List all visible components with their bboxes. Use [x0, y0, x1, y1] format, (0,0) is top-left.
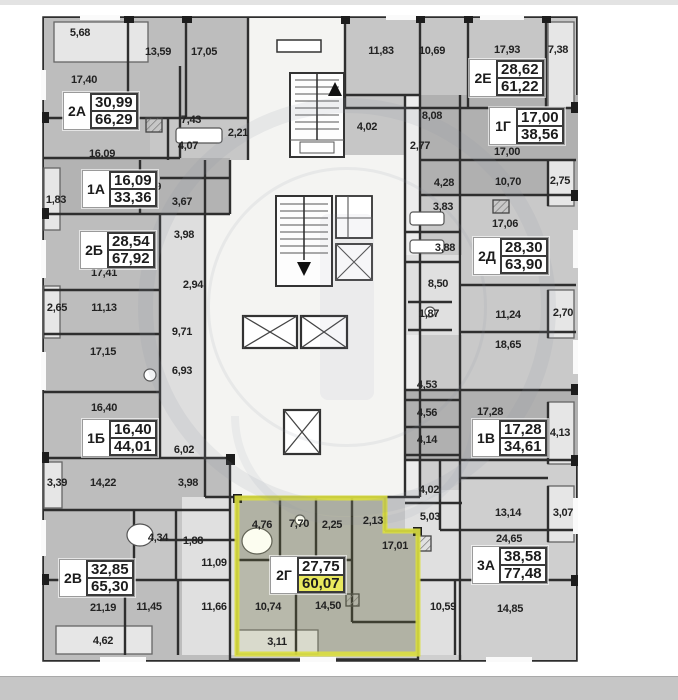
- apartment-id: 3А: [473, 547, 499, 583]
- apartment-id: 1Г: [490, 108, 516, 144]
- room-area-label: 17,06: [492, 218, 518, 230]
- room-area-label: 17,15: [90, 346, 116, 358]
- apartment-living-area: 17,28: [501, 422, 545, 437]
- room-area-label: 5,68: [70, 27, 90, 39]
- room-area-label: 3,98: [178, 477, 198, 489]
- room-area-label: 4,53: [417, 379, 437, 391]
- room-area-label: 2,21: [228, 127, 248, 139]
- room-area-label: 11,24: [495, 309, 520, 321]
- room-area-label: 4,14: [417, 434, 437, 446]
- apartment-id: 2В: [60, 560, 86, 596]
- room-area-label: 4,62: [93, 635, 113, 647]
- apartment-areas: 16,0933,36: [109, 171, 157, 207]
- floor-plan: 5,6813,5917,0517,407,4316,094,077,791,83…: [0, 0, 678, 700]
- room-area-label: 3,11: [267, 636, 287, 648]
- bottom-margin-band: [0, 676, 678, 700]
- room-area-label: 6,93: [172, 365, 192, 377]
- apartment-id: 2Г: [271, 557, 297, 593]
- room-area-label: 2,65: [47, 302, 67, 314]
- room-area-label: 2,94: [183, 279, 203, 291]
- room-area-label: 11,45: [136, 601, 161, 613]
- room-area-label: 3,83: [433, 201, 453, 213]
- apartment-areas: 30,9966,29: [90, 93, 138, 129]
- apartment-box-1А: 1А16,0933,36: [82, 170, 158, 208]
- apartment-living-area: 38,58: [501, 549, 545, 564]
- room-area-label: 10,69: [419, 45, 445, 57]
- room-area-label: 16,09: [89, 148, 115, 160]
- apartment-total-area: 34,61: [501, 437, 545, 454]
- room-area-label: 11,66: [201, 601, 226, 613]
- room-area-label: 4,76: [252, 519, 272, 531]
- room-area-label: 4,56: [417, 407, 437, 419]
- apartment-id: 2Д: [474, 238, 500, 274]
- apartment-living-area: 16,09: [111, 173, 155, 188]
- room-area-label: 3,39: [47, 477, 67, 489]
- apartment-id: 2А: [64, 93, 90, 129]
- apartment-box-1В: 1В17,2834,61: [472, 419, 548, 457]
- room-area-label: 3,98: [174, 229, 194, 241]
- apartment-id: 1Б: [83, 420, 109, 456]
- room-area-label: 14,22: [90, 477, 116, 489]
- apartment-living-area: 30,99: [92, 95, 136, 110]
- apartment-box-2Е: 2Е28,6261,22: [469, 59, 545, 97]
- room-area-label: 10,70: [495, 176, 521, 188]
- room-area-label: 3,67: [172, 196, 192, 208]
- apartment-box-2Г: 2Г27,7560,07: [270, 556, 346, 594]
- apartment-box-2Б: 2Б28,5467,92: [80, 231, 156, 269]
- room-area-label: 4,02: [419, 484, 439, 496]
- stairs-down-arrow: ▼: [298, 262, 311, 275]
- room-area-label: 1,87: [419, 308, 439, 320]
- room-area-label: 24,65: [496, 533, 522, 545]
- room-area-label: 8,50: [428, 278, 448, 290]
- apartment-areas: 28,3063,90: [500, 238, 548, 274]
- apartment-total-area: 61,22: [498, 77, 542, 94]
- room-area-label: 8,08: [422, 110, 442, 122]
- room-area-label: 4,07: [178, 140, 198, 152]
- apartment-id: 2Б: [81, 232, 107, 268]
- apartment-box-1Г: 1Г17,0038,56: [489, 107, 565, 145]
- apartment-box-2Д: 2Д28,3063,90: [473, 237, 549, 275]
- room-area-label: 6,02: [174, 444, 194, 456]
- apartment-areas: 32,8565,30: [86, 560, 134, 596]
- room-area-label: 4,28: [434, 177, 454, 189]
- room-area-label: 7,43: [181, 114, 201, 126]
- room-area-label: 2,25: [322, 519, 342, 531]
- room-area-label: 14,85: [497, 603, 523, 615]
- apartment-box-1Б: 1Б16,4044,01: [82, 419, 158, 457]
- room-area-label: 16,40: [91, 402, 117, 414]
- apartment-living-area: 32,85: [88, 562, 132, 577]
- room-area-label: 11,09: [201, 557, 226, 569]
- apartment-total-area: 38,56: [518, 125, 562, 142]
- apartment-areas: 16,4044,01: [109, 420, 157, 456]
- room-area-label: 3,88: [435, 242, 455, 254]
- room-area-label: 5,03: [420, 511, 440, 523]
- room-area-label: 7,70: [289, 518, 309, 530]
- room-area-label: 18,65: [495, 339, 521, 351]
- room-area-label: 1,83: [46, 194, 66, 206]
- room-area-label: 13,59: [145, 46, 171, 58]
- apartment-id: 1В: [473, 420, 499, 456]
- room-area-label: 2,77: [410, 140, 430, 152]
- apartment-areas: 27,7560,07: [297, 557, 345, 593]
- room-area-label: 4,02: [357, 121, 377, 133]
- apartment-living-area: 28,54: [109, 234, 153, 249]
- room-area-label: 17,05: [191, 46, 217, 58]
- apartment-areas: 17,2834,61: [499, 420, 547, 456]
- room-area-label: 14,50: [315, 600, 341, 612]
- room-area-label: 7,38: [548, 44, 568, 56]
- apartment-areas: 17,0038,56: [516, 108, 564, 144]
- room-area-label: 13,14: [495, 507, 521, 519]
- apartment-areas: 28,6261,22: [496, 60, 544, 96]
- room-area-label: 17,28: [477, 406, 503, 418]
- apartment-total-area: 44,01: [111, 437, 155, 454]
- room-area-label: 2,75: [550, 175, 570, 187]
- apartment-total-area: 60,07: [299, 574, 343, 591]
- room-area-label: 17,01: [382, 540, 408, 552]
- room-area-label: 1,88: [183, 535, 203, 547]
- room-area-label: 21,19: [90, 602, 116, 614]
- apartment-box-2В: 2В32,8565,30: [59, 559, 135, 597]
- apartment-total-area: 77,48: [501, 564, 545, 581]
- apartment-areas: 28,5467,92: [107, 232, 155, 268]
- apartment-box-2А: 2А30,9966,29: [63, 92, 139, 130]
- apartment-living-area: 28,30: [502, 240, 546, 255]
- apartment-box-3А: 3А38,5877,48: [472, 546, 548, 584]
- apartment-total-area: 67,92: [109, 249, 153, 266]
- room-area-label: 10,74: [255, 601, 281, 613]
- room-area-label: 2,13: [363, 515, 383, 527]
- room-area-label: 3,07: [553, 507, 573, 519]
- room-area-label: 9,71: [172, 326, 192, 338]
- apartment-living-area: 28,62: [498, 62, 542, 77]
- apartment-total-area: 65,30: [88, 577, 132, 594]
- apartment-total-area: 63,90: [502, 255, 546, 272]
- room-area-label: 10,59: [430, 601, 456, 613]
- apartment-total-area: 33,36: [111, 188, 155, 205]
- apartment-id: 2Е: [470, 60, 496, 96]
- room-area-label: 11,13: [91, 302, 116, 314]
- apartment-id: 1А: [83, 171, 109, 207]
- apartment-total-area: 66,29: [92, 110, 136, 127]
- room-area-label: 4,13: [550, 427, 570, 439]
- room-area-label: 11,83: [368, 45, 393, 57]
- room-area-label: 17,93: [494, 44, 520, 56]
- room-area-label: 4,34: [148, 532, 168, 544]
- apartment-living-area: 27,75: [299, 559, 343, 574]
- apartment-living-area: 17,00: [518, 110, 562, 125]
- apartment-living-area: 16,40: [111, 422, 155, 437]
- stairs-up-arrow: ▲: [329, 83, 342, 96]
- room-area-label: 2,70: [553, 307, 573, 319]
- room-area-label: 17,40: [71, 74, 97, 86]
- apartment-areas: 38,5877,48: [499, 547, 547, 583]
- room-area-label: 17,00: [494, 146, 520, 158]
